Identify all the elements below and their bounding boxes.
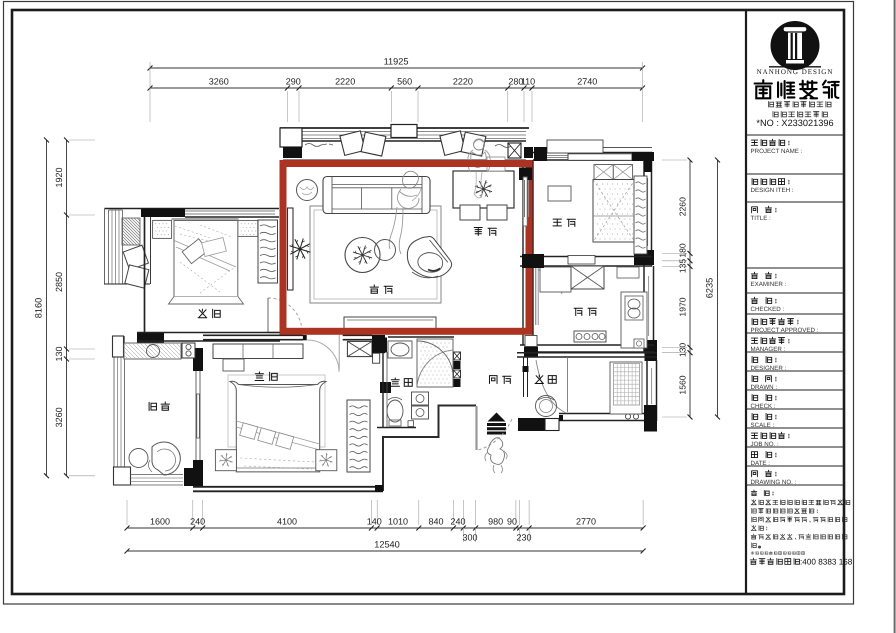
svg-text:130: 130 bbox=[678, 343, 688, 358]
svg-text:180: 180 bbox=[678, 243, 688, 258]
svg-text:2740: 2740 bbox=[577, 77, 597, 87]
svg-text::400 8383 168: :400 8383 168 bbox=[800, 558, 853, 567]
svg-text:90: 90 bbox=[507, 517, 517, 527]
svg-text:290: 290 bbox=[286, 77, 301, 87]
svg-text:240: 240 bbox=[190, 517, 205, 527]
svg-text:2220: 2220 bbox=[453, 77, 473, 87]
svg-text:*NO : X233021396: *NO : X233021396 bbox=[756, 118, 833, 128]
svg-text:DESIGN ITEH :: DESIGN ITEH : bbox=[751, 187, 794, 194]
svg-text:3260: 3260 bbox=[54, 407, 64, 427]
svg-text:PROJECT APPROVED :: PROJECT APPROVED : bbox=[751, 327, 819, 334]
svg-text:CHECKED :: CHECKED : bbox=[751, 306, 785, 313]
svg-text:2850: 2850 bbox=[54, 272, 64, 292]
svg-text:1600: 1600 bbox=[150, 517, 170, 527]
svg-text:840: 840 bbox=[428, 517, 443, 527]
svg-text:NANHONG DESIGN: NANHONG DESIGN bbox=[757, 68, 834, 76]
svg-text:MANAGER :: MANAGER : bbox=[751, 346, 786, 353]
svg-text:JOB NO. :: JOB NO. : bbox=[751, 441, 779, 448]
svg-text:EXAMINER :: EXAMINER : bbox=[751, 281, 787, 288]
svg-text:DRAWN :: DRAWN : bbox=[751, 384, 778, 391]
svg-text:110: 110 bbox=[521, 77, 535, 87]
svg-text:4100: 4100 bbox=[277, 517, 297, 527]
svg-text:11925: 11925 bbox=[384, 57, 409, 67]
svg-text:1920: 1920 bbox=[54, 167, 64, 187]
svg-text:300: 300 bbox=[462, 533, 477, 543]
svg-text:560: 560 bbox=[397, 77, 412, 87]
svg-text:230: 230 bbox=[516, 533, 531, 543]
svg-text:6235: 6235 bbox=[705, 278, 715, 298]
svg-text:130: 130 bbox=[54, 346, 64, 361]
svg-text:DESIGNER :: DESIGNER : bbox=[751, 365, 787, 372]
svg-text:1970: 1970 bbox=[678, 297, 688, 316]
svg-text:135: 135 bbox=[678, 259, 688, 274]
svg-text:240: 240 bbox=[450, 517, 465, 527]
svg-text:980: 980 bbox=[488, 517, 503, 527]
svg-text:SCALE :: SCALE : bbox=[751, 422, 775, 429]
svg-text:3260: 3260 bbox=[209, 77, 229, 87]
svg-text:140: 140 bbox=[367, 517, 382, 527]
svg-text:1560: 1560 bbox=[678, 375, 688, 394]
svg-text:CHECK :: CHECK : bbox=[751, 403, 776, 410]
svg-text:2220: 2220 bbox=[335, 77, 355, 87]
svg-text:TITLE :: TITLE : bbox=[751, 215, 772, 222]
svg-text:DATE :: DATE : bbox=[751, 460, 771, 467]
svg-text:2260: 2260 bbox=[678, 197, 688, 216]
svg-text:1010: 1010 bbox=[388, 517, 408, 527]
svg-text:8160: 8160 bbox=[34, 298, 44, 318]
svg-text:2770: 2770 bbox=[576, 517, 596, 527]
svg-text:12540: 12540 bbox=[374, 540, 400, 550]
svg-text:PROJECT NAME :: PROJECT NAME : bbox=[751, 148, 803, 155]
svg-text:DRAWING NO. :: DRAWING NO. : bbox=[751, 479, 797, 486]
